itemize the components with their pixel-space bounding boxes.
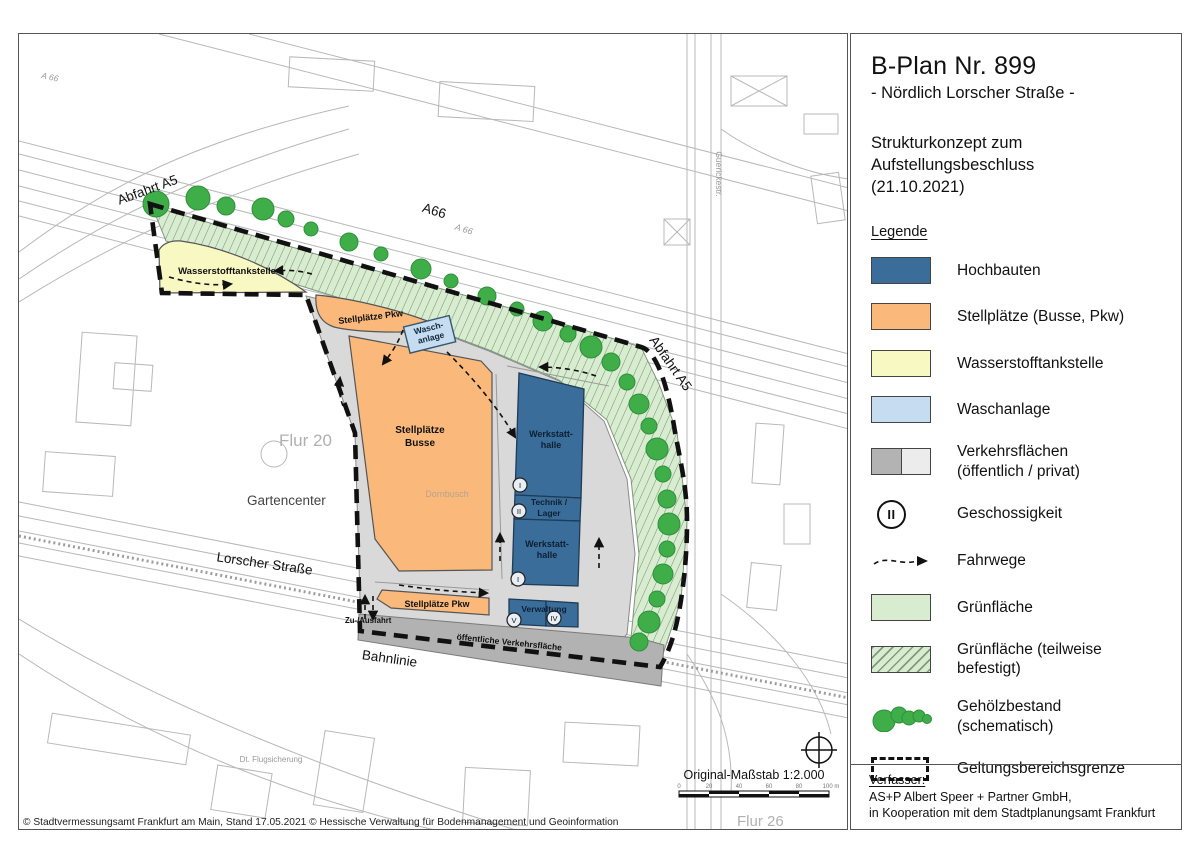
label-werkstatt2-b: halle bbox=[537, 550, 558, 560]
scale-bar: Original-Maßstab 1:2.000 0 20 40 60 80 1… bbox=[677, 768, 839, 797]
legend-label: Grünfläche (teilweise befestigt) bbox=[957, 640, 1161, 679]
storey-label: IV bbox=[550, 614, 557, 623]
legend-item-stellplaetze: Stellplätze (Busse, Pkw) bbox=[871, 303, 1161, 331]
author-heading: Verfasser: bbox=[869, 772, 1163, 788]
label-busse-1: Stellplätze bbox=[395, 425, 445, 436]
label-a66-small: A 66 bbox=[453, 221, 474, 236]
legend-item-gehoelzbestand: Gehölzbestand (schematisch) bbox=[871, 697, 1161, 736]
label-a66: A66 bbox=[421, 200, 448, 221]
map-svg: I II I V IV Wasserstofftankstelle Stellp… bbox=[19, 34, 848, 830]
map-copyright: © Stadtvermessungsamt Frankfurt am Main,… bbox=[23, 817, 618, 828]
label-dornbusch: Dornbusch bbox=[425, 489, 469, 499]
legend-label: Waschanlage bbox=[957, 400, 1050, 419]
crossed-building-icon bbox=[664, 219, 690, 245]
legend-heading: Legende bbox=[871, 224, 1161, 240]
legend-label: Verkehrsflächen(öffentlich / privat) bbox=[957, 442, 1080, 481]
label-busse-2: Busse bbox=[405, 438, 435, 449]
legend-label: Stellplätze (Busse, Pkw) bbox=[957, 307, 1124, 326]
storey-label: V bbox=[511, 616, 516, 625]
label-lorscher-strasse: Lorscher Straße bbox=[216, 549, 314, 577]
legend-label: Hochbauten bbox=[957, 261, 1041, 280]
label-wasserstofftankstelle: Wasserstofftankstelle bbox=[178, 266, 276, 277]
hydrogen-station-swatch bbox=[871, 350, 933, 377]
legend-label: Gehölzbestand (schematisch) bbox=[957, 697, 1161, 736]
legend-item-gruenflaeche: Grünfläche bbox=[871, 594, 1161, 622]
plan-description: Strukturkonzept zum Aufstellungsbeschlus… bbox=[871, 133, 1161, 198]
label-flugsicherung: Dt. Flugsicherung bbox=[240, 755, 303, 764]
label-technik-1: Technik / bbox=[531, 497, 568, 507]
label-flur20: Flur 20 bbox=[279, 431, 332, 450]
label-bahnlinie: Bahnlinie bbox=[361, 647, 418, 670]
tree-cluster-icon bbox=[871, 702, 933, 732]
author-box: Verfasser: AS+P Albert Speer + Partner G… bbox=[851, 764, 1181, 829]
scale-tick: 60 bbox=[766, 784, 773, 790]
scale-tick: 80 bbox=[796, 784, 803, 790]
author-line1: AS+P Albert Speer + Partner GmbH, bbox=[869, 789, 1163, 805]
legend-label: Geschossigkeit bbox=[957, 504, 1062, 523]
label-guerickestr: Guerickestr. bbox=[714, 151, 724, 196]
legend-item-geschossigkeit: IIGeschossigkeit bbox=[871, 500, 1161, 529]
legend-item-hochbauten: Hochbauten bbox=[871, 256, 1161, 284]
storey-circle-icon: II bbox=[871, 500, 933, 529]
scale-tick: 20 bbox=[706, 784, 713, 790]
plan-description-line2: Aufstellungsbeschluss bbox=[871, 155, 1161, 177]
building-swatch bbox=[871, 257, 933, 284]
storey-label: I bbox=[519, 481, 521, 490]
label-flur26: Flur 26 bbox=[737, 813, 784, 830]
parking-swatch bbox=[871, 303, 933, 330]
label-gartencenter: Gartencenter bbox=[247, 493, 326, 508]
legend-item-fahrwege: Fahrwege bbox=[871, 547, 1161, 575]
scale-tick: 0 bbox=[677, 784, 681, 790]
legend-item-verkehrsflaechen: Verkehrsflächen(öffentlich / privat) bbox=[871, 442, 1161, 481]
info-panel: B-Plan Nr. 899 - Nördlich Lorscher Straß… bbox=[850, 33, 1182, 830]
green-hatched-swatch bbox=[871, 646, 933, 673]
route-arrow-icon bbox=[871, 550, 933, 572]
label-verwaltung: Verwaltung bbox=[521, 604, 566, 614]
scale-tick: 100 m bbox=[823, 784, 840, 790]
wash-swatch bbox=[871, 396, 933, 423]
plan-sheet: I II I V IV Wasserstofftankstelle Stellp… bbox=[0, 0, 1200, 850]
plan-description-line1: Strukturkonzept zum bbox=[871, 133, 1161, 155]
scale-tick: 40 bbox=[736, 784, 743, 790]
legend-label: Wasserstofftankstelle bbox=[957, 354, 1103, 373]
legend-label: Fahrwege bbox=[957, 551, 1026, 570]
plan-title: B-Plan Nr. 899 bbox=[871, 52, 1161, 81]
traffic-area-swatch bbox=[871, 448, 933, 475]
label-stellplaetze-pkw-bottom: Stellplätze Pkw bbox=[404, 599, 470, 609]
label-a66-topleft: A 66 bbox=[40, 70, 60, 84]
map-area: I II I V IV Wasserstofftankstelle Stellp… bbox=[18, 33, 848, 830]
legend-label: Grünfläche bbox=[957, 598, 1033, 617]
scale-text: Original-Maßstab 1:2.000 bbox=[683, 768, 824, 782]
green-area-swatch bbox=[871, 594, 933, 621]
legend-item-wasserstofftankstelle: Wasserstofftankstelle bbox=[871, 349, 1161, 377]
label-werkstatt1-b: halle bbox=[541, 440, 562, 450]
crossed-building-icon bbox=[731, 76, 787, 106]
label-technik-2: Lager bbox=[537, 508, 561, 518]
label-werkstatt1-a: Werkstatt- bbox=[529, 429, 573, 439]
plan-description-line3: (21.10.2021) bbox=[871, 177, 1161, 199]
storey-label: I bbox=[517, 575, 519, 584]
label-werkstatt2-a: Werkstatt- bbox=[525, 539, 569, 549]
legend-item-gruenflaeche-befestigt: Grünfläche (teilweise befestigt) bbox=[871, 640, 1161, 679]
label-zu-ausfahrt: Zu-/Ausfahrt bbox=[345, 616, 392, 625]
crosshair-icon bbox=[801, 732, 837, 768]
plan-subtitle: - Nördlich Lorscher Straße - bbox=[871, 84, 1161, 103]
author-line2: in Kooperation mit dem Stadtplanungsamt … bbox=[869, 805, 1163, 821]
legend-item-waschanlage: Waschanlage bbox=[871, 396, 1161, 424]
storey-label: II bbox=[517, 507, 521, 516]
legend-list: HochbautenStellplätze (Busse, Pkw)Wasser… bbox=[871, 256, 1161, 782]
